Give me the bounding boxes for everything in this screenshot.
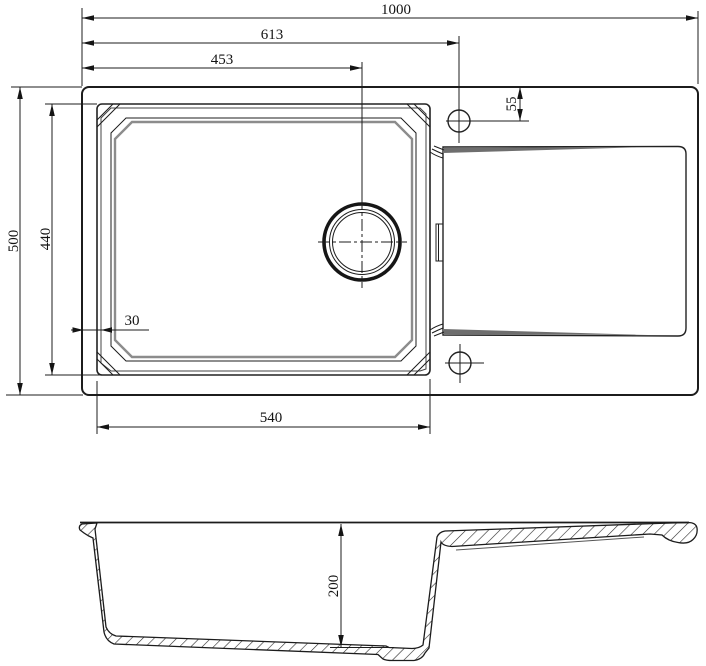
dimension-613: 613: [82, 27, 459, 43]
dim-bowl-outer-depth-label: 440: [38, 228, 54, 251]
dim-overall-width-label: 1000: [381, 2, 411, 18]
sink-outline: [82, 87, 698, 395]
dim-rim-margin-label: 30: [125, 313, 140, 329]
dim-drain-offset-label: 453: [211, 52, 234, 68]
sink-drawing-svg: 1000 613 453 55 500 440: [0, 0, 706, 666]
dim-faucet-offset-label: 613: [261, 27, 284, 43]
section-profile: [79, 523, 697, 661]
top-view: 1000 613 453 55 500 440: [6, 2, 698, 434]
technical-drawing-page: 1000 613 453 55 500 440: [0, 0, 706, 666]
dim-hole-from-edge-label: 55: [504, 97, 520, 112]
section-view: 200: [79, 523, 697, 661]
dimension-200: 200: [326, 524, 394, 648]
dim-bowl-outer-width-label: 540: [260, 410, 283, 426]
dimension-1000: 1000: [82, 2, 698, 86]
dim-overall-depth-label: 500: [6, 230, 22, 253]
dim-bowl-depth-label: 200: [326, 575, 342, 598]
